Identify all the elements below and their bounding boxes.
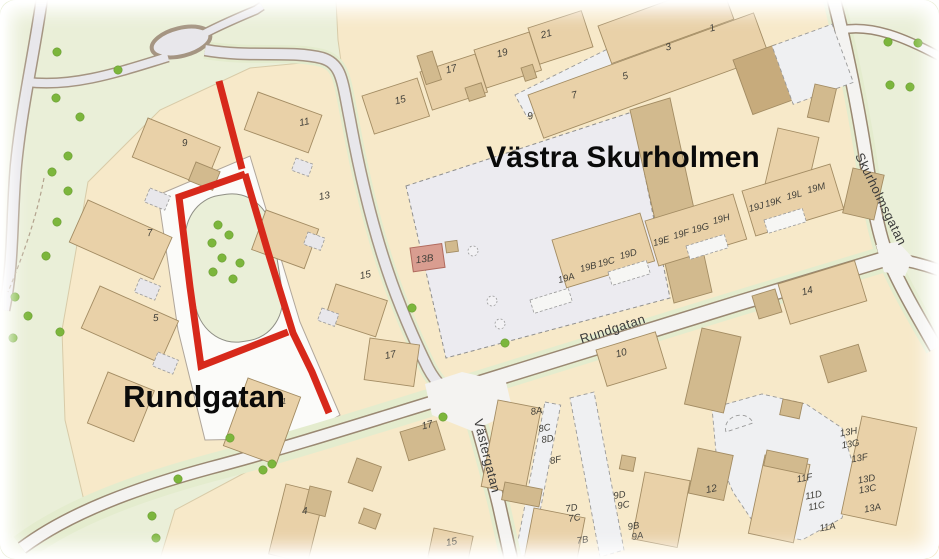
parking-marker [495,319,505,329]
tree-icon [11,293,19,301]
building [619,455,635,471]
tree-icon [229,275,237,283]
tree-icon [9,334,17,342]
house-number: 8A [530,405,543,418]
map-screenshot: 9 11 7 5 13 15 17 15 17 19 21 9 7 5 3 1 … [0,0,939,559]
house-number: 8D [541,433,555,446]
tree-icon [501,339,509,347]
tree-icon [214,221,222,229]
tree-icon [64,152,72,160]
tree-icon [886,81,894,89]
tree-icon [52,94,60,102]
house-number: 7C [568,512,582,525]
house-number: 9A [631,530,644,543]
building [780,399,803,419]
house-number: 11 [298,116,310,129]
tree-icon [48,168,56,176]
tree-icon [114,66,122,74]
tree-icon [884,38,892,46]
street-label-big-rundgatan: Rundgatan [123,379,285,414]
tree-icon [56,328,64,336]
tree-icon [906,83,914,91]
district-label: Västra Skurholmen [486,141,759,174]
tree-icon [225,231,233,239]
tree-icon [53,218,61,226]
tree-icon [218,254,226,262]
parking-marker [468,246,478,256]
tree-icon [226,434,234,442]
map-canvas[interactable]: 9 11 7 5 13 15 17 15 17 19 21 9 7 5 3 1 … [0,0,939,559]
building [364,338,419,387]
tree-icon [148,512,156,520]
tree-icon [152,534,160,542]
building [445,240,458,253]
tree-icon [208,239,216,247]
tree-icon [76,113,84,121]
tree-icon [24,312,32,320]
tree-icon [53,48,61,56]
tree-icon [259,466,267,474]
tree-icon [439,413,447,421]
tree-icon [174,475,182,483]
tree-icon [408,304,416,312]
tree-icon [236,259,244,267]
tree-icon [914,39,922,47]
tree-icon [268,460,276,468]
house-number: 9C [617,499,631,512]
tree-icon [42,252,50,260]
tree-icon [209,268,217,276]
parking-marker [487,296,497,306]
tree-icon [64,187,72,195]
